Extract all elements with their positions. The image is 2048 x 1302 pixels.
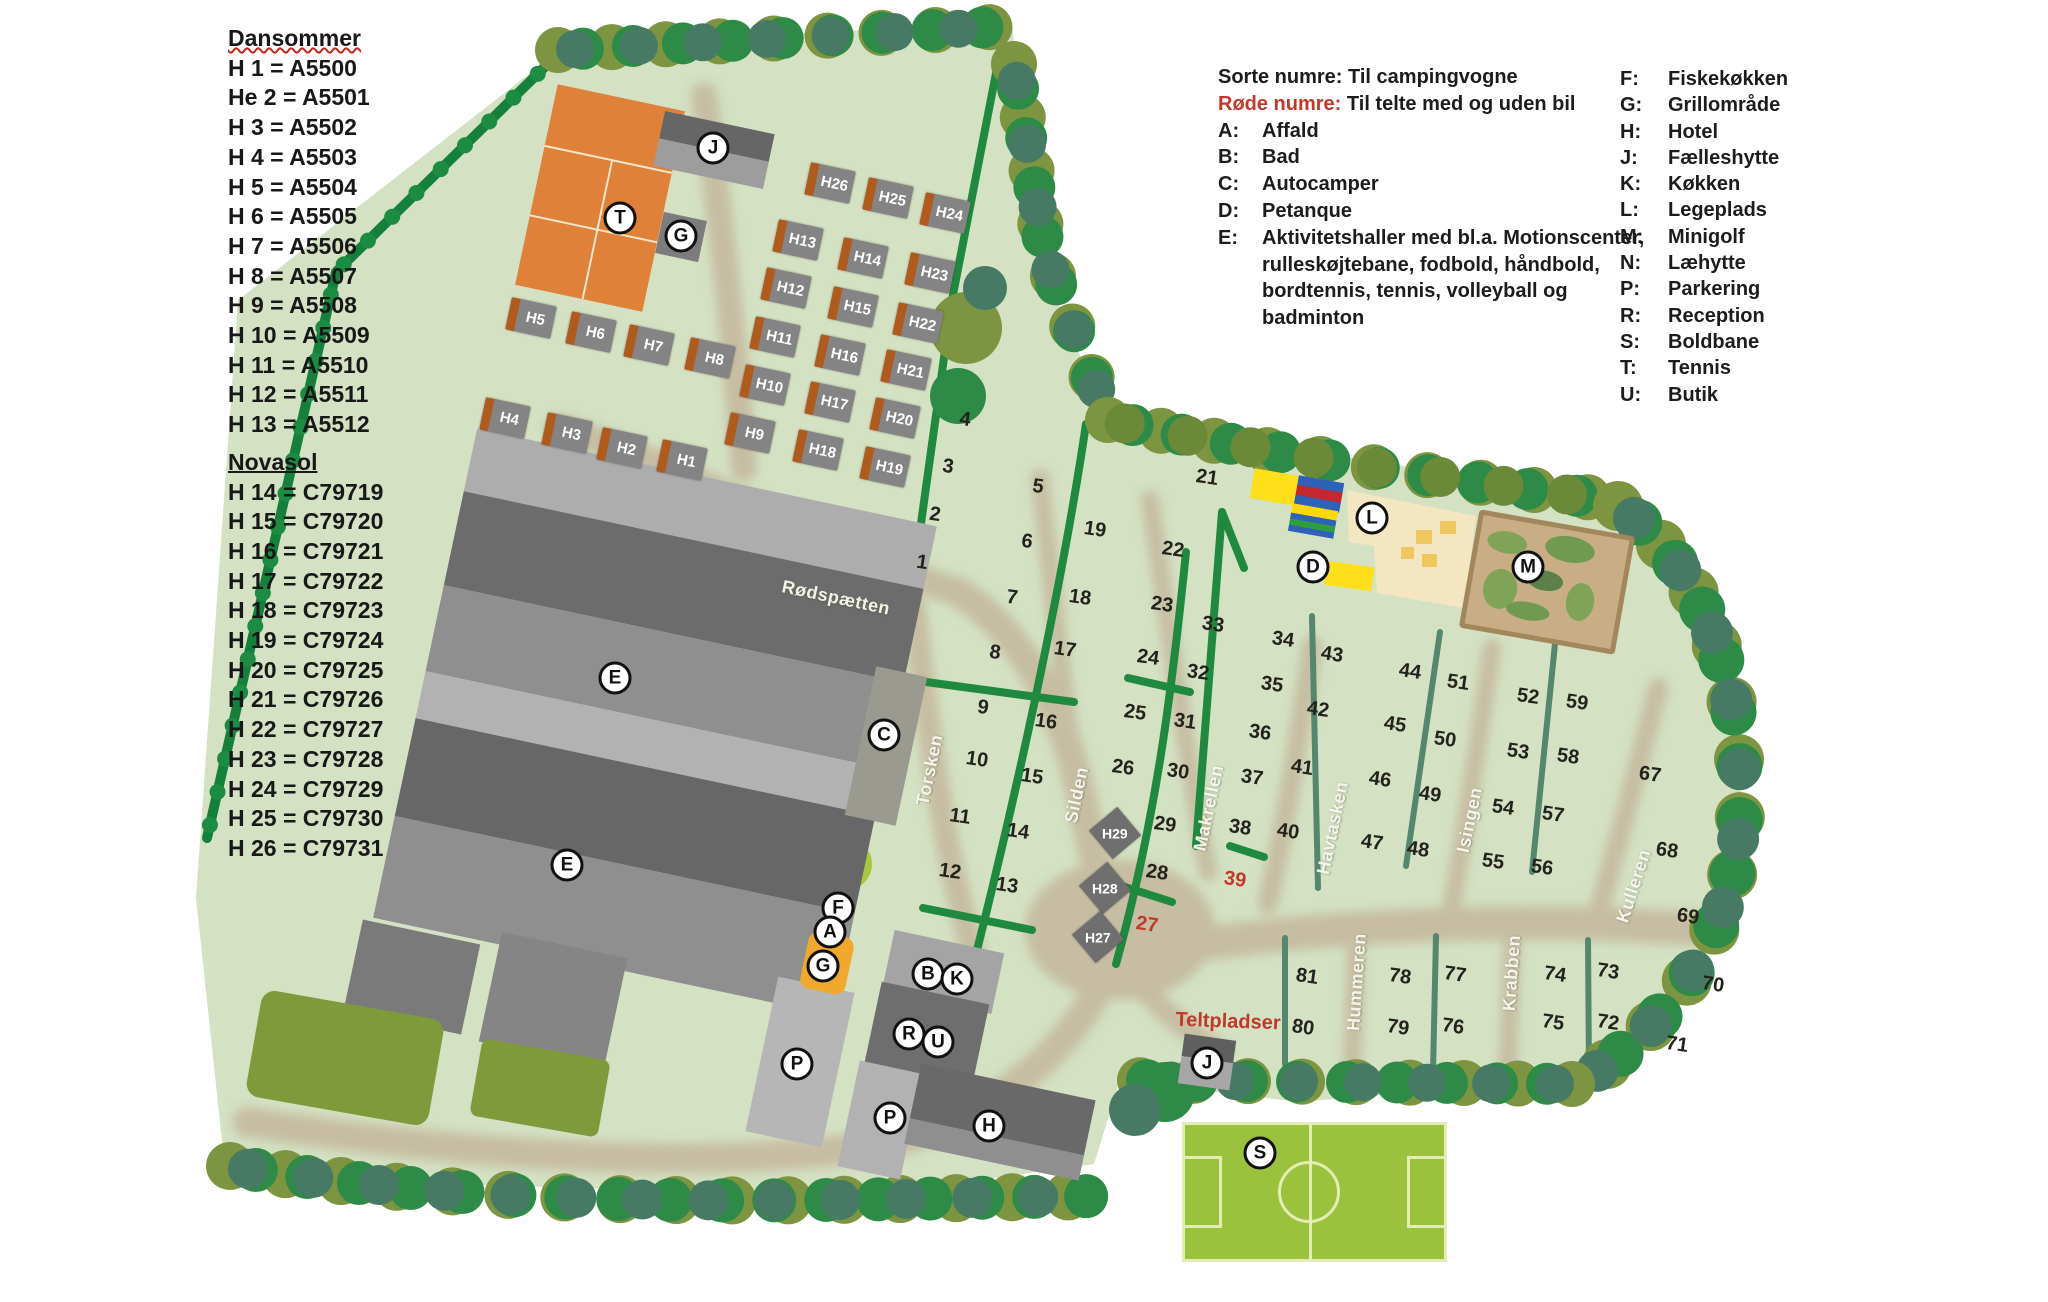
pitch-number-9: 9 bbox=[976, 696, 990, 720]
pitch-number-80: 80 bbox=[1290, 1015, 1315, 1041]
facility-marker-l-17: L bbox=[1356, 502, 1389, 535]
pitch-number-32: 32 bbox=[1185, 660, 1210, 686]
facility-marker-u-12: U bbox=[922, 1026, 955, 1059]
road-label-kulleren: Kulleren bbox=[1612, 847, 1655, 926]
pitch-number-8: 8 bbox=[988, 641, 1002, 665]
pitch-number-36: 36 bbox=[1247, 720, 1272, 746]
cabin-H21: H21 bbox=[880, 349, 932, 391]
road-label-rødspætten: Rødspætten bbox=[780, 576, 892, 619]
cabin-H20: H20 bbox=[869, 397, 921, 439]
cabin-H11: H11 bbox=[749, 316, 801, 358]
pitch-number-42: 42 bbox=[1305, 697, 1330, 723]
pitch-number-5: 5 bbox=[1031, 475, 1045, 499]
pitch-number-12: 12 bbox=[937, 859, 962, 885]
pitch-number-67: 67 bbox=[1637, 762, 1662, 788]
facility-marker-e-4: E bbox=[551, 849, 584, 882]
facility-marker-k-10: K bbox=[941, 963, 974, 996]
pitch-number-50: 50 bbox=[1432, 727, 1457, 753]
pitch-number-17: 17 bbox=[1052, 637, 1077, 663]
pitch-number-16: 16 bbox=[1033, 709, 1058, 735]
cabin-H14: H14 bbox=[837, 237, 889, 279]
cabin-H2: H2 bbox=[596, 427, 648, 469]
pitch-number-28: 28 bbox=[1144, 860, 1169, 886]
facility-marker-j-0: J bbox=[697, 132, 730, 165]
pitch-number-79: 79 bbox=[1385, 1015, 1410, 1041]
facility-marker-r-11: R bbox=[893, 1018, 926, 1051]
road-label-hummeren: Hummeren bbox=[1343, 932, 1371, 1031]
pitch-number-51: 51 bbox=[1445, 670, 1470, 696]
tent-area-label: Teltpladser bbox=[1175, 1009, 1281, 1036]
facility-marker-b-9: B bbox=[912, 958, 945, 991]
pitch-number-41: 41 bbox=[1289, 755, 1314, 781]
pitch-number-44: 44 bbox=[1397, 659, 1422, 685]
cabin-H8: H8 bbox=[684, 337, 736, 379]
pitch-number-4: 4 bbox=[958, 408, 972, 432]
pitch-number-78: 78 bbox=[1387, 964, 1412, 990]
pitch-number-46: 46 bbox=[1367, 767, 1392, 793]
pitch-number-30: 30 bbox=[1165, 759, 1190, 785]
pitch-number-34: 34 bbox=[1270, 627, 1295, 653]
cabin-H28: H28 bbox=[1079, 862, 1131, 914]
pitch-number-53: 53 bbox=[1505, 739, 1530, 765]
cabin-H7: H7 bbox=[623, 324, 675, 366]
cabin-H10: H10 bbox=[739, 364, 791, 406]
tent-pitch-number-27: 27 bbox=[1134, 912, 1159, 938]
pitch-number-74: 74 bbox=[1542, 962, 1567, 988]
cabin-H16: H16 bbox=[814, 334, 866, 376]
pitch-number-31: 31 bbox=[1172, 709, 1197, 735]
pitch-number-29: 29 bbox=[1152, 812, 1177, 838]
cabin-label: H28 bbox=[1092, 880, 1118, 896]
facility-marker-g-8: G bbox=[807, 950, 840, 983]
pitch-number-1: 1 bbox=[915, 551, 929, 575]
pitch-number-23: 23 bbox=[1149, 592, 1174, 618]
pitch-number-73: 73 bbox=[1595, 959, 1620, 985]
facility-marker-t-1: T bbox=[604, 202, 637, 235]
pitch-number-43: 43 bbox=[1319, 642, 1344, 668]
pitch-number-14: 14 bbox=[1005, 819, 1030, 845]
cabin-H18: H18 bbox=[792, 429, 844, 471]
pitch-number-18: 18 bbox=[1067, 585, 1092, 611]
facility-marker-p-13: P bbox=[781, 1048, 814, 1081]
facility-marker-h-15: H bbox=[973, 1110, 1006, 1143]
pitch-number-54: 54 bbox=[1490, 795, 1515, 821]
road-label-silden: Silden bbox=[1061, 765, 1093, 825]
pitch-number-33: 33 bbox=[1200, 612, 1225, 638]
pitch-number-13: 13 bbox=[994, 873, 1019, 899]
pitch-number-37: 37 bbox=[1239, 765, 1264, 791]
cabin-label: H29 bbox=[1102, 825, 1128, 841]
pitch-number-40: 40 bbox=[1275, 819, 1300, 845]
cabin-label: H27 bbox=[1085, 929, 1111, 945]
cabin-H1: H1 bbox=[656, 439, 708, 481]
facility-marker-s-20: S bbox=[1244, 1137, 1277, 1170]
facility-marker-m-19: M bbox=[1512, 551, 1545, 584]
road-label-torsken: Torsken bbox=[912, 733, 948, 808]
pitch-number-19: 19 bbox=[1082, 517, 1107, 543]
pitch-number-21: 21 bbox=[1194, 465, 1219, 491]
cabin-H17: H17 bbox=[804, 381, 856, 423]
cabin-H15: H15 bbox=[827, 286, 879, 328]
pitch-number-56: 56 bbox=[1529, 855, 1554, 881]
pitch-number-26: 26 bbox=[1110, 755, 1135, 781]
cabin-H25: H25 bbox=[862, 177, 914, 219]
pitch-number-76: 76 bbox=[1440, 1014, 1465, 1040]
facility-marker-e-3: E bbox=[599, 662, 632, 695]
cabin-H4: H4 bbox=[479, 397, 531, 439]
pitch-number-48: 48 bbox=[1405, 837, 1430, 863]
pitch-number-59: 59 bbox=[1564, 690, 1589, 716]
map-labels-layer: 1234567891011121314151617181921222324252… bbox=[0, 0, 2048, 1302]
pitch-number-71: 71 bbox=[1664, 1032, 1689, 1058]
pitch-number-3: 3 bbox=[941, 455, 955, 479]
pitch-number-11: 11 bbox=[948, 804, 972, 830]
cabin-H26: H26 bbox=[804, 162, 856, 204]
pitch-number-81: 81 bbox=[1294, 964, 1319, 990]
pitch-number-55: 55 bbox=[1480, 849, 1505, 875]
pitch-number-52: 52 bbox=[1515, 684, 1540, 710]
cabin-H9: H9 bbox=[724, 412, 776, 454]
tent-pitch-number-39: 39 bbox=[1222, 867, 1247, 893]
pitch-number-68: 68 bbox=[1654, 838, 1679, 864]
facility-marker-a-7: A bbox=[814, 916, 847, 949]
pitch-number-58: 58 bbox=[1555, 744, 1580, 770]
cabin-H6: H6 bbox=[565, 311, 617, 353]
cabin-H22: H22 bbox=[892, 302, 944, 344]
pitch-number-2: 2 bbox=[928, 503, 942, 527]
pitch-number-47: 47 bbox=[1359, 830, 1384, 856]
cabin-H23: H23 bbox=[904, 252, 956, 294]
pitch-number-24: 24 bbox=[1135, 645, 1160, 671]
facility-marker-c-5: C bbox=[868, 719, 901, 752]
pitch-number-77: 77 bbox=[1442, 962, 1467, 988]
pitch-number-75: 75 bbox=[1540, 1010, 1565, 1036]
pitch-number-72: 72 bbox=[1595, 1010, 1620, 1036]
pitch-number-7: 7 bbox=[1005, 586, 1019, 610]
pitch-number-38: 38 bbox=[1227, 815, 1252, 841]
pitch-number-25: 25 bbox=[1122, 700, 1147, 726]
cabin-H27: H27 bbox=[1072, 911, 1124, 963]
pitch-number-57: 57 bbox=[1540, 802, 1565, 828]
road-label-krabben: Krabben bbox=[1499, 934, 1525, 1012]
pitch-number-22: 22 bbox=[1160, 537, 1185, 563]
pitch-number-45: 45 bbox=[1382, 712, 1407, 738]
cabin-H5: H5 bbox=[505, 297, 557, 339]
facility-marker-g-2: G bbox=[665, 220, 698, 253]
cabin-H12: H12 bbox=[760, 267, 812, 309]
pitch-number-35: 35 bbox=[1259, 672, 1284, 698]
pitch-number-15: 15 bbox=[1019, 764, 1044, 790]
road-label-isingen: Isingen bbox=[1453, 785, 1487, 854]
pitch-number-69: 69 bbox=[1675, 904, 1700, 930]
road-label-havtasken: Havtasken bbox=[1313, 780, 1353, 877]
facility-marker-j-16: J bbox=[1191, 1047, 1224, 1080]
cabin-H13: H13 bbox=[772, 219, 824, 261]
cabin-H3: H3 bbox=[541, 412, 593, 454]
pitch-number-10: 10 bbox=[964, 747, 989, 773]
facility-marker-p-14: P bbox=[874, 1102, 907, 1135]
pitch-number-70: 70 bbox=[1700, 972, 1725, 998]
cabin-H19: H19 bbox=[859, 446, 911, 488]
cabin-H29: H29 bbox=[1089, 807, 1141, 859]
pitch-number-6: 6 bbox=[1020, 530, 1034, 554]
road-label-makrellen: Makrellen bbox=[1190, 763, 1229, 853]
cabin-H24: H24 bbox=[919, 192, 971, 234]
pitch-number-49: 49 bbox=[1417, 782, 1442, 808]
facility-marker-d-18: D bbox=[1297, 551, 1330, 584]
